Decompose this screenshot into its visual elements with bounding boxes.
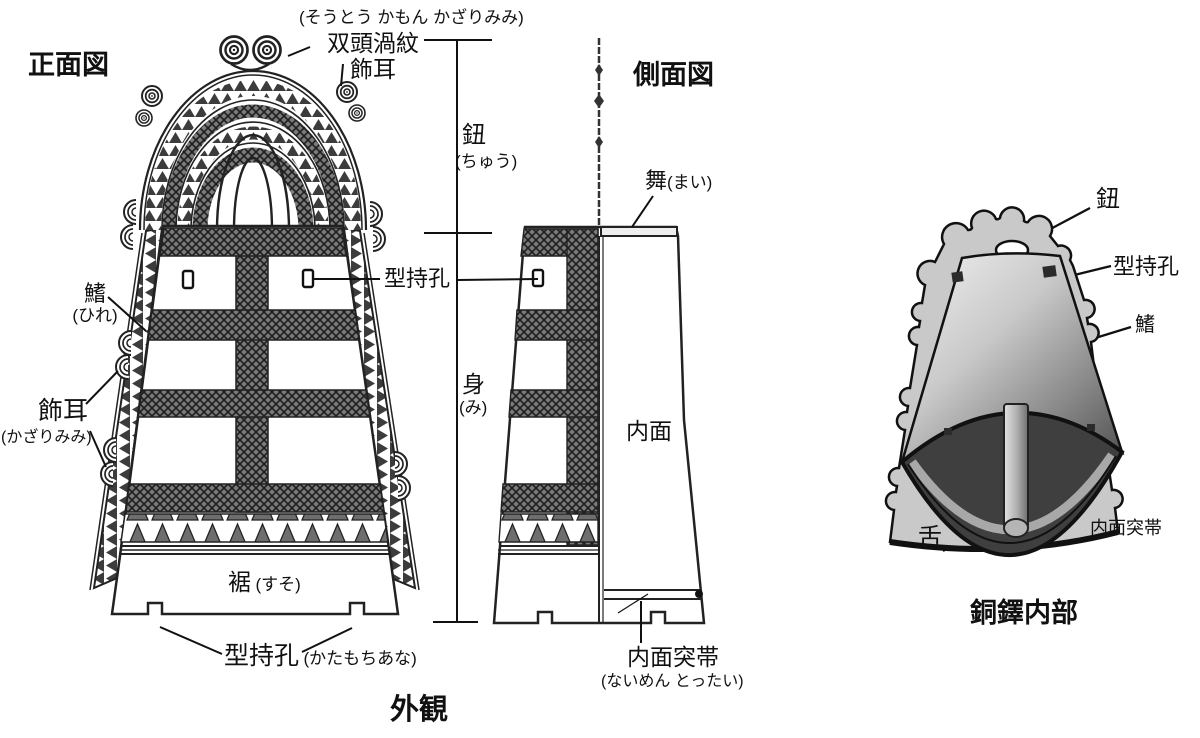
interior-fin-label: 鰭	[1135, 314, 1155, 337]
bottom-hole-label: 型持孔 (かたもちあな)	[224, 642, 417, 671]
exterior-caption: 外観	[390, 694, 448, 727]
ornament-line2: 飾耳	[312, 56, 434, 82]
bottom-hole-furigana: (かたもちあな)	[303, 649, 416, 668]
top-face-furigana: (まい)	[667, 173, 712, 192]
dotaku-diagram: 正面図 (そうとう かもん かざりみみ) 双頭渦紋 飾耳 側面図 鈕 (ちゅう)…	[0, 0, 1200, 738]
skirt-furigana: (すそ)	[255, 575, 300, 594]
handle-dimension-furigana: (ちゅう)	[455, 152, 517, 172]
inner-band-label: 内面突帯	[627, 644, 719, 670]
fin-furigana: (ひれ)	[66, 306, 124, 326]
interior-mold-hole-label: 型持孔	[1113, 254, 1179, 279]
fin-kanji: 鰭	[66, 281, 124, 306]
body-dimension-label: 身	[462, 371, 485, 397]
interior-handle-label: 鈕	[1096, 186, 1120, 214]
ornament-furigana: (そうとう かもん かざりみみ)	[299, 8, 524, 28]
top-face-kanji: 舞	[645, 168, 667, 193]
fin-label: 鰭 (ひれ)	[66, 281, 124, 326]
front-view-title: 正面図	[28, 50, 109, 81]
top-face-label: 舞(まい)	[645, 168, 712, 193]
inner-face-label: 内面	[626, 418, 672, 444]
interior-drawing	[886, 207, 1123, 555]
skirt-label: 裾 (すそ)	[228, 569, 301, 595]
ornament-line1: 双頭渦紋	[312, 30, 434, 56]
ornament-label: 双頭渦紋 飾耳	[312, 30, 434, 83]
interior-caption: 銅鐸内部	[970, 598, 1078, 629]
ear-furigana: (かざりみみ)	[1, 429, 92, 447]
mold-hole-label: 型持孔	[384, 266, 450, 291]
body-dimension-furigana: (み)	[459, 398, 487, 418]
side-view-title: 側面図	[633, 60, 714, 91]
clapper-label: 舌	[918, 524, 942, 552]
interior-band-label: 内面突帯	[1090, 518, 1162, 539]
bottom-hole-kanji: 型持孔	[224, 642, 299, 670]
inner-band-furigana: (ないめん とったい)	[601, 673, 744, 691]
side-view-drawing	[494, 38, 704, 623]
handle-dimension-label: 鈕	[462, 122, 486, 150]
ear-label: 飾耳	[38, 397, 88, 426]
skirt-kanji: 裾	[228, 569, 251, 595]
